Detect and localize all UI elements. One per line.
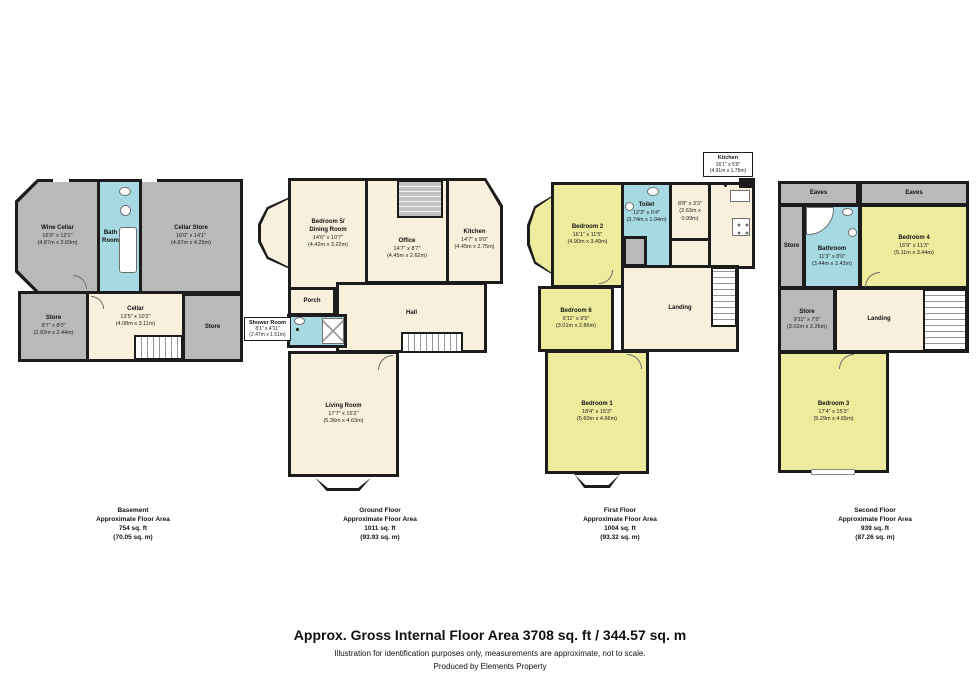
floorplan-page: Wine Cellar 16'0" x 12'1" (4.87m x 3.69m… (0, 0, 980, 692)
room-name: Bedroom 1 (577, 401, 617, 409)
room-dims-imperial: 16'1" x 11'5" (567, 232, 607, 239)
room-store-mid: Store 9'11" x 7'5" (3.02m x 2.26m) (778, 287, 836, 353)
caption-ground: Ground Floor Approximate Floor Area 1011… (310, 506, 450, 542)
chimney-block (739, 178, 755, 188)
footer: Approx. Gross Internal Floor Area 3708 s… (0, 627, 980, 671)
room-dims-imperial: 8'8" x 3'3" (672, 201, 708, 208)
caption-area-ft: 1011 sq. ft (310, 524, 450, 533)
room-name: Living Room (323, 403, 363, 411)
room-dims-metric: (4.87m x 4.29m) (171, 240, 211, 247)
staircase-icon (134, 335, 183, 360)
doorway-gap (53, 177, 69, 182)
room-label: Bathroom 11'3" x 8'0" (3.44m x 2.43m) (812, 246, 852, 268)
floorplan-second: Eaves Eaves Store Bathroom 11'3" x 8'0" … (775, 178, 972, 478)
room-dims-metric: (4.42m x 3.22m) (308, 242, 348, 249)
room-name: Eaves (905, 190, 922, 198)
caption-subtitle: Approximate Floor Area (63, 515, 203, 524)
room-label: Porch (303, 298, 320, 306)
room-name: Cellar (116, 306, 156, 314)
room-label: Eaves (905, 190, 922, 198)
room-dims-imperial: 16'9" x 11'3" (894, 243, 934, 250)
room-name: Bedroom 4 (894, 235, 934, 243)
room-dims-metric: (4.87m x 3.69m) (37, 240, 77, 247)
window-glazing (307, 477, 379, 488)
window-icon (811, 469, 855, 475)
room-name: Store (205, 324, 220, 332)
room-dims-metric: (3.44m x 2.43m) (812, 261, 852, 268)
room-name: Landing (867, 316, 890, 324)
room-dims-metric: (4.90m x 3.49m) (567, 239, 607, 246)
room-name: Bathroom (812, 246, 852, 254)
room-label: Bedroom 5/ Dining Room 14'6" x 10'7" (4.… (308, 219, 348, 249)
room-store-upper-left: Store (778, 204, 805, 289)
room-dims-metric: (2.63m x 0.99m) (672, 208, 708, 222)
room-dims-imperial: 9'7" x 8'0" (33, 323, 73, 330)
room-name: Kitchen (718, 155, 738, 162)
staircase-icon (397, 180, 443, 218)
room-dims-metric: (5.36m x 4.63m) (323, 418, 363, 425)
room-label: Cellar 13'5" x 10'2" (4.08m x 3.11m) (116, 306, 156, 328)
room-dims-metric: (2.92m x 2.44m) (33, 330, 73, 337)
external-label-kitchen: Kitchen 16'1" x 5'9" (4.91m x 1.75m) (703, 152, 753, 177)
toilet-icon (647, 187, 659, 196)
room-cellar-store: Cellar Store 16'0" x 14'1" (4.87m x 4.29… (139, 179, 243, 294)
caption-first: First Floor Approximate Floor Area 1004 … (550, 506, 690, 542)
room-name: Hall (406, 310, 417, 318)
room-label: Eaves (810, 190, 827, 198)
caption-subtitle: Approximate Floor Area (310, 515, 450, 524)
sink-icon (848, 228, 857, 237)
staircase-icon (711, 267, 737, 327)
room-name: Bedroom 6 (556, 308, 596, 316)
stove-icon (732, 218, 750, 236)
room-dims-imperial: 17'7" x 15'2" (323, 411, 363, 418)
room-label: Hall (406, 310, 417, 318)
room-dims-imperial: 11'3" x 8'0" (812, 254, 852, 261)
room-eaves-right: Eaves (859, 181, 969, 206)
room-name: Bedroom 2 (567, 224, 607, 232)
caption-title: Second Floor (805, 506, 945, 515)
caption-area-m: (87.26 sq. m) (805, 533, 945, 542)
room-dims-imperial: 18'4" x 15'3" (577, 409, 617, 416)
room-dims-imperial: 9'11" x 9'5" (556, 316, 596, 323)
room-dims-metric: (3.02m x 2.26m) (787, 324, 827, 331)
room-label: Bath Room (102, 230, 119, 246)
room-label: Store (205, 324, 220, 332)
floorplan-basement: Wine Cellar 16'0" x 12'1" (4.87m x 3.69m… (15, 177, 245, 367)
disclaimer-text: Illustration for identification purposes… (0, 649, 980, 658)
doorway-gap (142, 177, 157, 182)
room-wine-cellar: Wine Cellar 16'0" x 12'1" (4.87m x 3.69m… (15, 179, 100, 294)
room-label: Bedroom 4 16'9" x 11'3" (5.11m x 3.44m) (894, 235, 934, 257)
toilet-icon (294, 317, 305, 325)
room-label: Store 9'7" x 8'0" (2.92m x 2.44m) (33, 315, 73, 337)
room-label: Landing (867, 316, 890, 324)
room-label: Wine Cellar 16'0" x 12'1" (4.87m x 3.69m… (37, 225, 77, 247)
room-name: Wine Cellar (37, 225, 77, 233)
room-dims-metric: (4.45m x 2.62m) (387, 253, 427, 260)
caption-area-ft: 1004 sq. ft (550, 524, 690, 533)
room-name: Bedroom 3 (813, 401, 853, 409)
staircase-icon (401, 332, 463, 353)
room-dims-imperial: 16'0" x 12'1" (37, 233, 77, 240)
kitchen-sink-icon (730, 190, 750, 202)
room-porch: Porch (288, 287, 336, 316)
room-name: Office (387, 238, 427, 246)
label-leader-dot (296, 328, 299, 331)
room-fill (261, 199, 289, 267)
room-label: Bedroom 1 18'4" x 15'3" (5.60m x 4.66m) (577, 401, 617, 423)
window-glazing (568, 475, 626, 485)
room-label: Bedroom 2 16'1" x 11'5" (4.90m x 3.49m) (567, 224, 607, 246)
shower-tray-icon (322, 318, 344, 344)
room-dims-metric: (3.74m x 1.94m) (626, 217, 666, 224)
room-name: Eaves (810, 190, 827, 198)
bathtub-icon (119, 227, 137, 273)
room-dims-imperial: 9'11" x 7'5" (787, 317, 827, 324)
room-dims-imperial: 12'3" x 6'4" (626, 210, 666, 217)
caption-area-m: (70.05 sq. m) (63, 533, 203, 542)
room-label: 8'8" x 3'3" (2.63m x 0.99m) (672, 201, 708, 222)
caption-subtitle: Approximate Floor Area (805, 515, 945, 524)
caption-area-m: (93.93 sq. m) (310, 533, 450, 542)
closet-block (623, 236, 647, 267)
room-dims-metric: (4.45m x 2.75m) (454, 244, 494, 251)
room-store-left: Store 9'7" x 8'0" (2.92m x 2.44m) (18, 291, 89, 362)
room-name: Store (787, 309, 827, 317)
room-label: Store (784, 243, 799, 251)
caption-area-ft: 754 sq. ft (63, 524, 203, 533)
room-label: Landing (668, 305, 691, 313)
external-label-shower-room: Shower Room 8'1" x 4'11" (2.47m x 1.51m) (244, 317, 291, 341)
room-kitchen: Kitchen 14'7" x 9'0" (4.45m x 2.75m) (446, 178, 503, 284)
toilet-icon (119, 187, 131, 196)
room-name: Cellar Store (171, 225, 211, 233)
credit-text: Produced by Elements Property (0, 662, 980, 671)
caption-basement: Basement Approximate Floor Area 754 sq. … (63, 506, 203, 542)
room-dims-metric: (5.29m x 4.65m) (813, 416, 853, 423)
room-eaves-left: Eaves (778, 181, 859, 206)
caption-title: First Floor (550, 506, 690, 515)
room-dims-imperial: 14'7" x 9'0" (454, 237, 494, 244)
room-dims-imperial: 14'6" x 10'7" (308, 235, 348, 242)
room-name: Landing (668, 305, 691, 313)
room-dims-metric: (5.11m x 3.44m) (894, 250, 934, 257)
caption-subtitle: Approximate Floor Area (550, 515, 690, 524)
floorplan-first: Kitchen 16'1" x 5'9" (4.91m x 1.75m) Bed… (527, 178, 761, 494)
room-dims-metric: (5.60m x 4.66m) (577, 416, 617, 423)
room-label: Cellar Store 16'0" x 14'1" (4.87m x 4.29… (171, 225, 211, 247)
caption-area-m: (93.32 sq. m) (550, 533, 690, 542)
room-dims-imperial: 14'7" x 8'7" (387, 246, 427, 253)
room-label: Toilet 12'3" x 6'4" (3.74m x 1.94m) (626, 202, 666, 224)
room-bedroom3: Bedroom 3 17'4" x 15'3" (5.29m x 4.65m) (778, 351, 889, 473)
room-label: Living Room 17'7" x 15'2" (5.36m x 4.63m… (323, 403, 363, 425)
floorplan-ground: Bedroom 5/ Dining Room 14'6" x 10'7" (4.… (258, 170, 504, 495)
room-label: Store 9'11" x 7'5" (3.02m x 2.26m) (787, 309, 827, 331)
room-dims-metric: (4.91m x 1.75m) (710, 168, 746, 174)
bay-window-living-room (304, 474, 382, 491)
room-dims-metric: (4.08m x 3.11m) (116, 321, 156, 328)
room-name: Shower Room (249, 320, 286, 327)
room-fill (530, 197, 552, 273)
caption-second: Second Floor Approximate Floor Area 939 … (805, 506, 945, 542)
room-dims-metric: (2.47m x 1.51m) (249, 332, 285, 338)
caption-area-ft: 939 sq. ft (805, 524, 945, 533)
room-label: Bedroom 3 17'4" x 15'3" (5.29m x 4.65m) (813, 401, 853, 423)
room-box-room: 8'8" x 3'3" (2.63m x 0.99m) (669, 182, 711, 242)
room-bedroom6: Bedroom 6 9'11" x 9'5" (3.01m x 2.86m) (538, 286, 614, 352)
gross-floor-area-title: Approx. Gross Internal Floor Area 3708 s… (0, 627, 980, 643)
room-name: Bath Room (102, 230, 119, 246)
room-dims-imperial: 17'4" x 15'3" (813, 409, 853, 416)
room-dims-metric: (3.01m x 2.86m) (556, 323, 596, 330)
room-name: Store (784, 243, 799, 251)
room-label: Bedroom 6 9'11" x 9'5" (3.01m x 2.86m) (556, 308, 596, 330)
room-store-right: Store (182, 293, 243, 362)
room-label: Office 14'7" x 8'7" (4.45m x 2.62m) (387, 238, 427, 260)
room-name: Porch (303, 298, 320, 306)
sink-icon (120, 205, 131, 216)
room-name: Store (33, 315, 73, 323)
staircase-icon (923, 289, 967, 351)
room-dims-imperial: 13'5" x 10'2" (116, 314, 156, 321)
room-bedroom2: Bedroom 2 16'1" x 11'5" (4.90m x 3.49m) (551, 182, 624, 288)
label-leader-dot (724, 184, 727, 187)
bay-window-bedroom5 (258, 196, 292, 270)
room-name: Toilet (626, 202, 666, 210)
room-name: Kitchen (454, 229, 494, 237)
room-dims-imperial: 16'0" x 14'1" (171, 233, 211, 240)
room-label: Kitchen 14'7" x 9'0" (4.45m x 2.75m) (454, 229, 494, 251)
caption-title: Basement (63, 506, 203, 515)
room-bedroom5-dining: Bedroom 5/ Dining Room 14'6" x 10'7" (4.… (288, 178, 368, 290)
bay-window-bedroom1 (565, 472, 629, 488)
room-name: Bedroom 5/ Dining Room (308, 219, 348, 235)
caption-title: Ground Floor (310, 506, 450, 515)
toilet-icon (842, 208, 853, 216)
